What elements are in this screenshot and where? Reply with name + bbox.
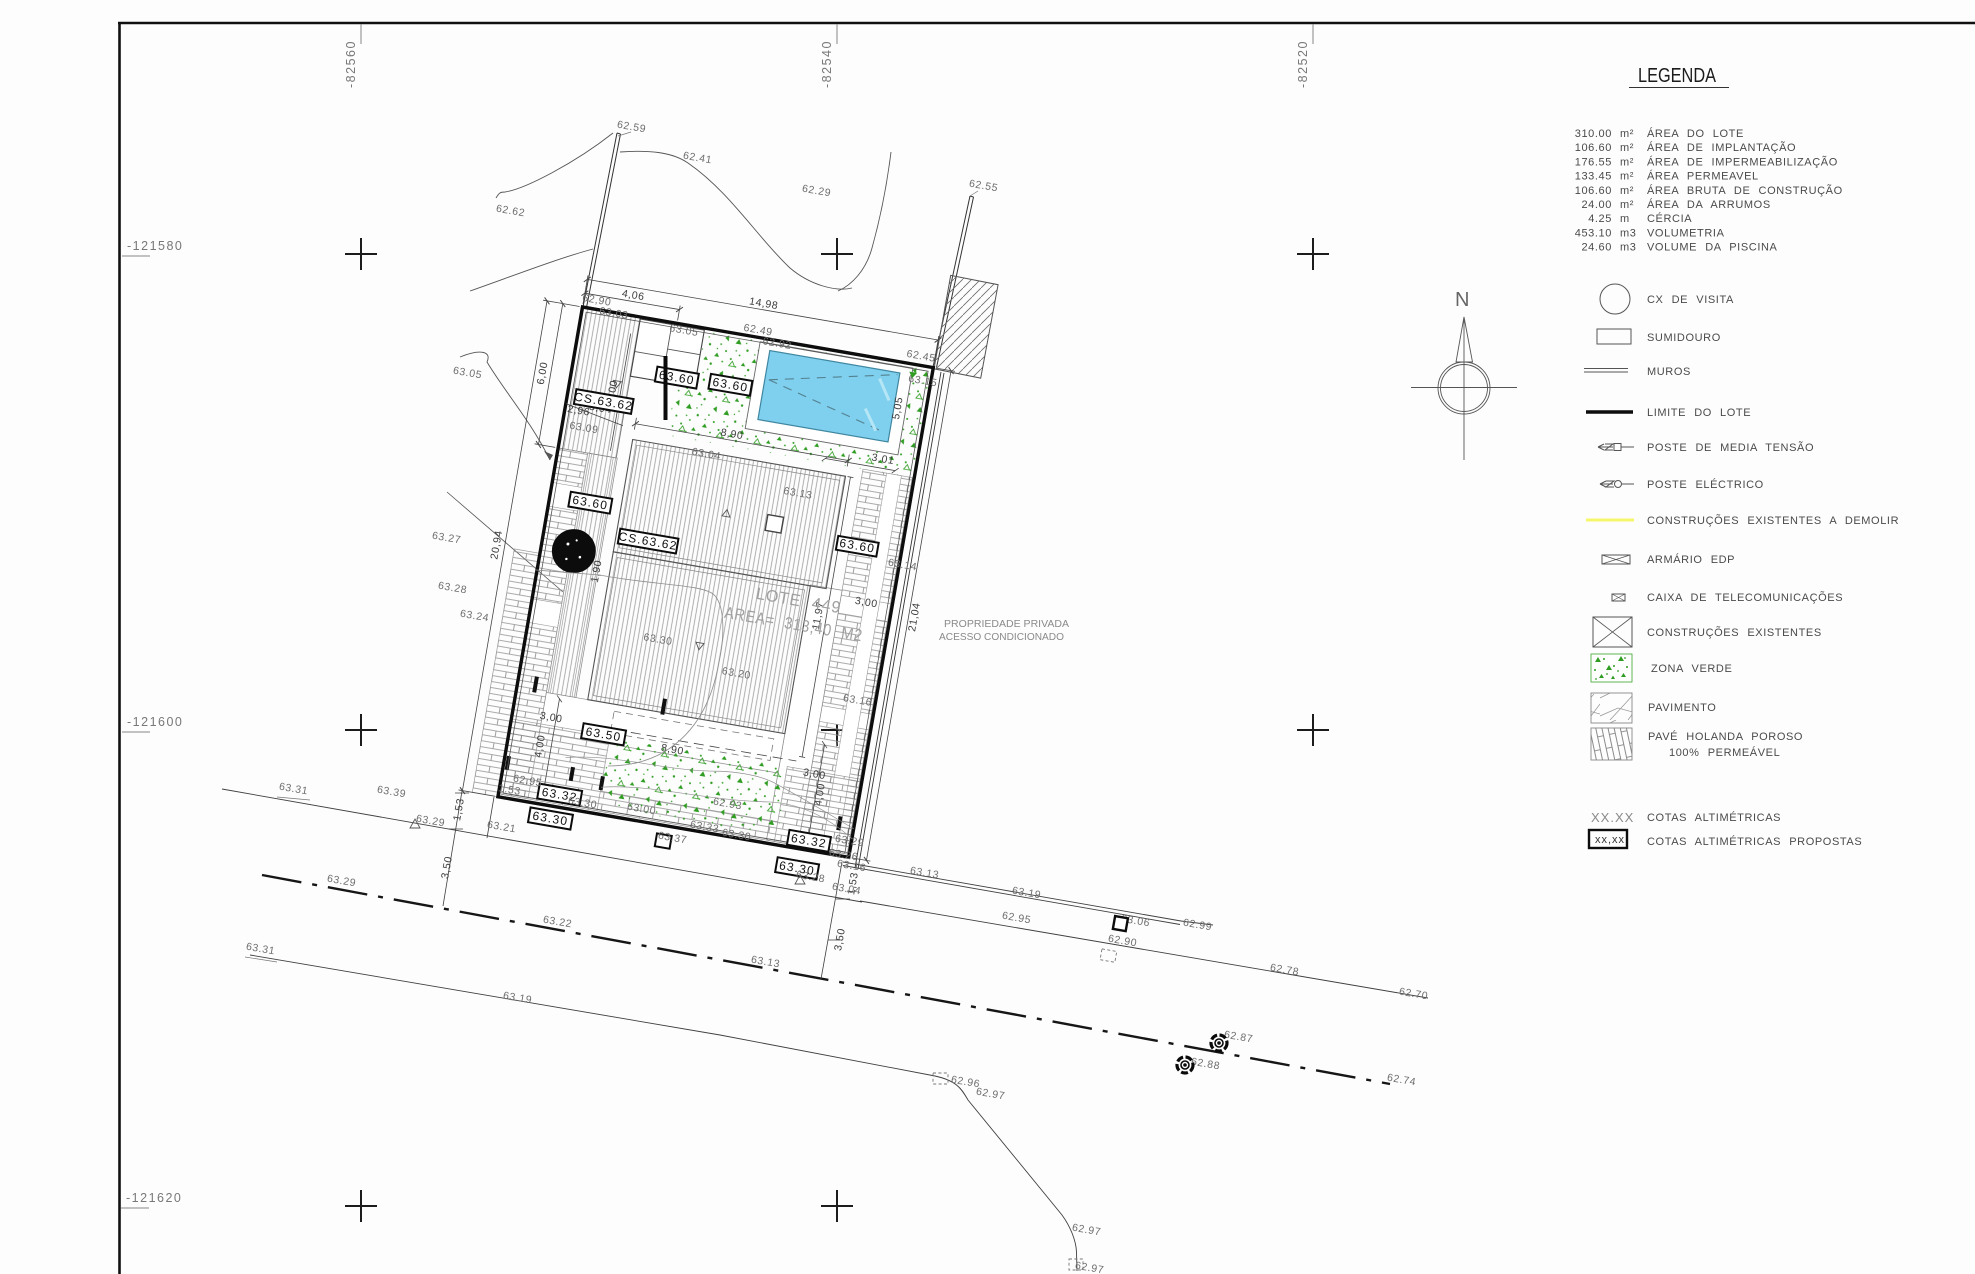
- svg-text:ÁREA DE IMPERMEABILIZAÇÃO: ÁREA DE IMPERMEABILIZAÇÃO: [1647, 155, 1838, 168]
- svg-text:m²: m²: [1620, 199, 1634, 211]
- svg-text:ÁREA BRUTA DE CONSTRUÇÃO: ÁREA BRUTA DE CONSTRUÇÃO: [1647, 184, 1843, 197]
- svg-text:106.60: 106.60: [1575, 185, 1612, 197]
- svg-text:CX DE VISITA: CX DE VISITA: [1647, 294, 1734, 306]
- svg-text:m²: m²: [1620, 142, 1634, 154]
- svg-text:-82540: -82540: [820, 40, 834, 88]
- svg-text:m²: m²: [1620, 128, 1634, 140]
- svg-text:-121580: -121580: [127, 239, 183, 253]
- svg-text:N: N: [1455, 289, 1470, 311]
- svg-text:PAVÉ HOLANDA POROSO: PAVÉ HOLANDA POROSO: [1648, 730, 1803, 743]
- svg-text:ACESSO CONDICIONADO: ACESSO CONDICIONADO: [939, 631, 1064, 643]
- svg-text:ÁREA PERMEAVEL: ÁREA PERMEAVEL: [1647, 170, 1759, 183]
- svg-text:PROPRIEDADE PRIVADA: PROPRIEDADE PRIVADA: [944, 618, 1069, 630]
- svg-text:CÉRCIA: CÉRCIA: [1647, 212, 1692, 225]
- svg-text:CONSTRUÇÕES EXISTENTES: CONSTRUÇÕES EXISTENTES: [1647, 626, 1822, 639]
- svg-text:PAVIMENTO: PAVIMENTO: [1648, 702, 1716, 714]
- svg-text:m²: m²: [1620, 171, 1634, 183]
- svg-text:-121600: -121600: [127, 715, 183, 729]
- svg-text:COTAS ALTIMÉTRICAS PROPOSTAS: COTAS ALTIMÉTRICAS PROPOSTAS: [1647, 835, 1862, 848]
- svg-text:CAIXA DE TELECOMUNICAÇÕES: CAIXA DE TELECOMUNICAÇÕES: [1647, 591, 1843, 604]
- svg-text:24.60: 24.60: [1581, 242, 1612, 254]
- svg-text:VOLUMETRIA: VOLUMETRIA: [1647, 227, 1725, 239]
- svg-text:176.55: 176.55: [1575, 156, 1612, 168]
- svg-text:24.00: 24.00: [1581, 199, 1612, 211]
- svg-text:m²: m²: [1620, 185, 1634, 197]
- svg-text:310.00: 310.00: [1575, 128, 1612, 140]
- svg-text:-121620: -121620: [126, 1191, 182, 1205]
- svg-text:133.45: 133.45: [1575, 171, 1612, 183]
- svg-text:xx,xx: xx,xx: [1595, 834, 1625, 846]
- svg-text:ARMÁRIO EDP: ARMÁRIO EDP: [1647, 553, 1735, 566]
- svg-text:COTAS ALTIMÉTRICAS: COTAS ALTIMÉTRICAS: [1647, 811, 1781, 824]
- svg-text:m3: m3: [1620, 227, 1636, 239]
- svg-text:100% PERMEÁVEL: 100% PERMEÁVEL: [1669, 746, 1780, 759]
- svg-text:453.10: 453.10: [1575, 227, 1612, 239]
- svg-text:XX.XX: XX.XX: [1591, 810, 1634, 825]
- svg-text:ZONA VERDE: ZONA VERDE: [1651, 663, 1732, 675]
- svg-text:m: m: [1620, 213, 1630, 225]
- svg-text:ÁREA DA ARRUMOS: ÁREA DA ARRUMOS: [1647, 198, 1771, 211]
- svg-text:LEGENDA: LEGENDA: [1638, 65, 1717, 87]
- svg-text:-82560: -82560: [344, 40, 358, 88]
- svg-text:m²: m²: [1620, 156, 1634, 168]
- svg-text:m3: m3: [1620, 242, 1636, 254]
- svg-text:ÁREA DO LOTE: ÁREA DO LOTE: [1647, 127, 1744, 140]
- svg-text:4.25: 4.25: [1588, 213, 1612, 225]
- svg-text:POSTE DE MEDIA TENSÃO: POSTE DE MEDIA TENSÃO: [1647, 441, 1814, 454]
- svg-text:SUMIDOURO: SUMIDOURO: [1647, 332, 1721, 344]
- svg-text:ÁREA DE IMPLANTAÇÃO: ÁREA DE IMPLANTAÇÃO: [1647, 141, 1796, 154]
- svg-text:LIMITE DO LOTE: LIMITE DO LOTE: [1647, 407, 1751, 419]
- svg-text:-82520: -82520: [1296, 40, 1310, 88]
- svg-text:VOLUME DA PISCINA: VOLUME DA PISCINA: [1647, 242, 1778, 254]
- svg-text:CONSTRUÇÕES EXISTENTES A DEMOL: CONSTRUÇÕES EXISTENTES A DEMOLIR: [1647, 514, 1899, 527]
- svg-text:POSTE ELÉCTRICO: POSTE ELÉCTRICO: [1647, 478, 1764, 491]
- svg-text:MUROS: MUROS: [1647, 366, 1691, 378]
- svg-text:106.60: 106.60: [1575, 142, 1612, 154]
